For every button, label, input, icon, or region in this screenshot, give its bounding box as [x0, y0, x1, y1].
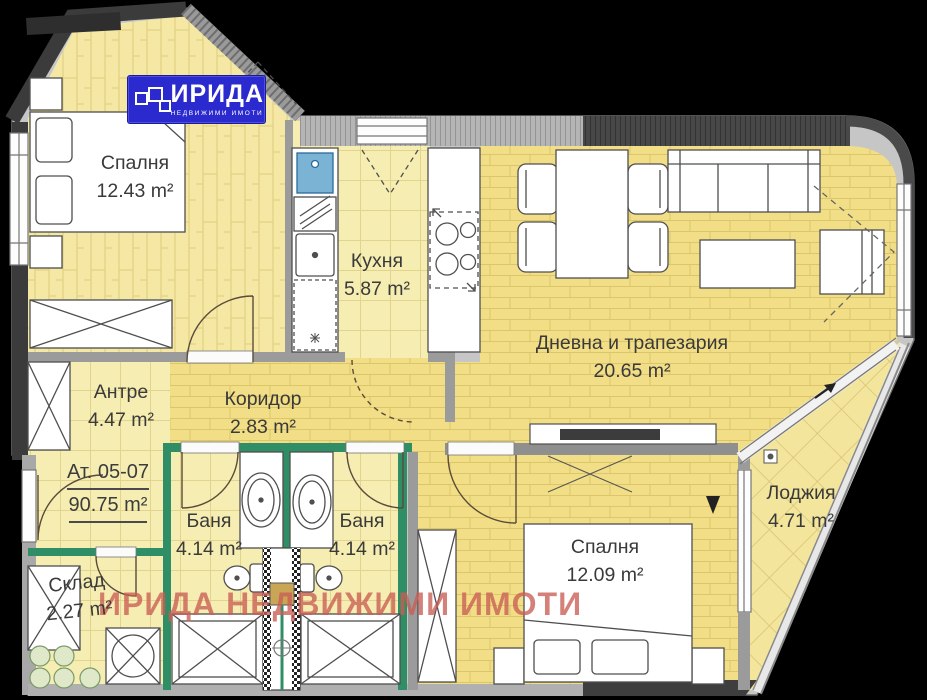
entry-wardrobe — [28, 362, 70, 450]
logo-brand-text: ИРИДА — [171, 82, 264, 107]
logo-tagline-text: НЕДВИЖИМИ ИМОТИ — [171, 110, 264, 117]
coffee-table — [700, 240, 795, 288]
dining-table — [518, 150, 668, 278]
apartment-total-area: 90.75 m² — [69, 490, 148, 523]
agency-logo: ИРИДА НЕДВИЖИМИ ИМОТИ — [128, 76, 265, 123]
apartment-label: Ат. 05-07 90.75 m² — [48, 457, 168, 523]
logo-qr-icon — [135, 84, 165, 116]
watermark-text: ИРИДА НЕДВИЖИМИ ИМОТИ — [98, 586, 578, 623]
sofa — [668, 150, 820, 212]
floor-plan-image: ИРИДА НЕДВИЖИМИ ИМОТИ ИРИДА НЕДВИЖИМИ ИМ… — [0, 0, 927, 700]
apartment-unit: Ат. 05-07 — [67, 457, 149, 490]
